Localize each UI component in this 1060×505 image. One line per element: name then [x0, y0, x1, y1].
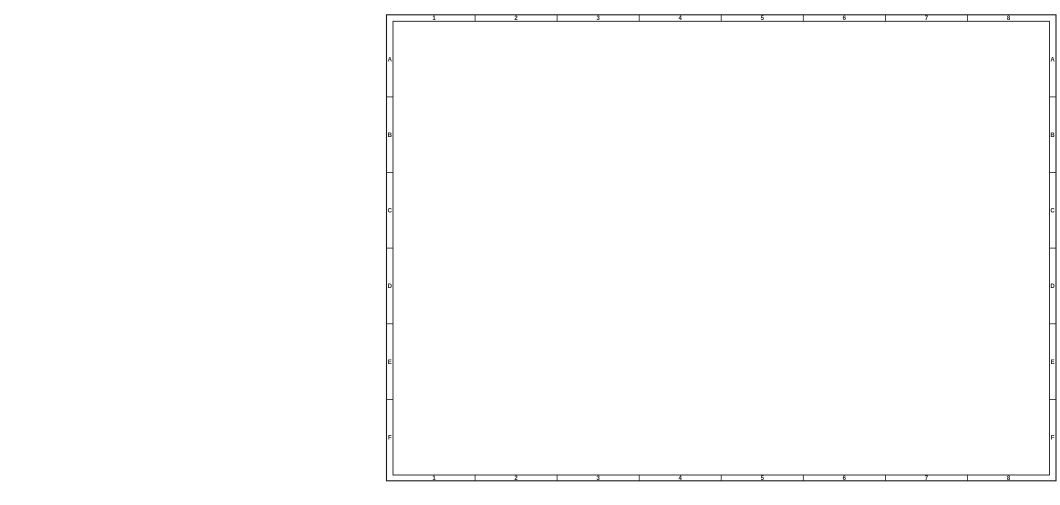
svg-text:C: C: [1050, 209, 1055, 215]
svg-text:E: E: [1051, 360, 1055, 366]
svg-text:F: F: [388, 435, 392, 441]
svg-text:A: A: [1050, 57, 1055, 63]
svg-text:F: F: [1051, 435, 1055, 441]
svg-text:C: C: [388, 209, 393, 215]
svg-text:B: B: [1050, 133, 1055, 139]
svg-text:D: D: [388, 284, 393, 290]
svg-text:A: A: [388, 57, 393, 63]
svg-text:E: E: [388, 360, 392, 366]
svg-text:B: B: [388, 133, 393, 139]
svg-text:D: D: [1050, 284, 1055, 290]
